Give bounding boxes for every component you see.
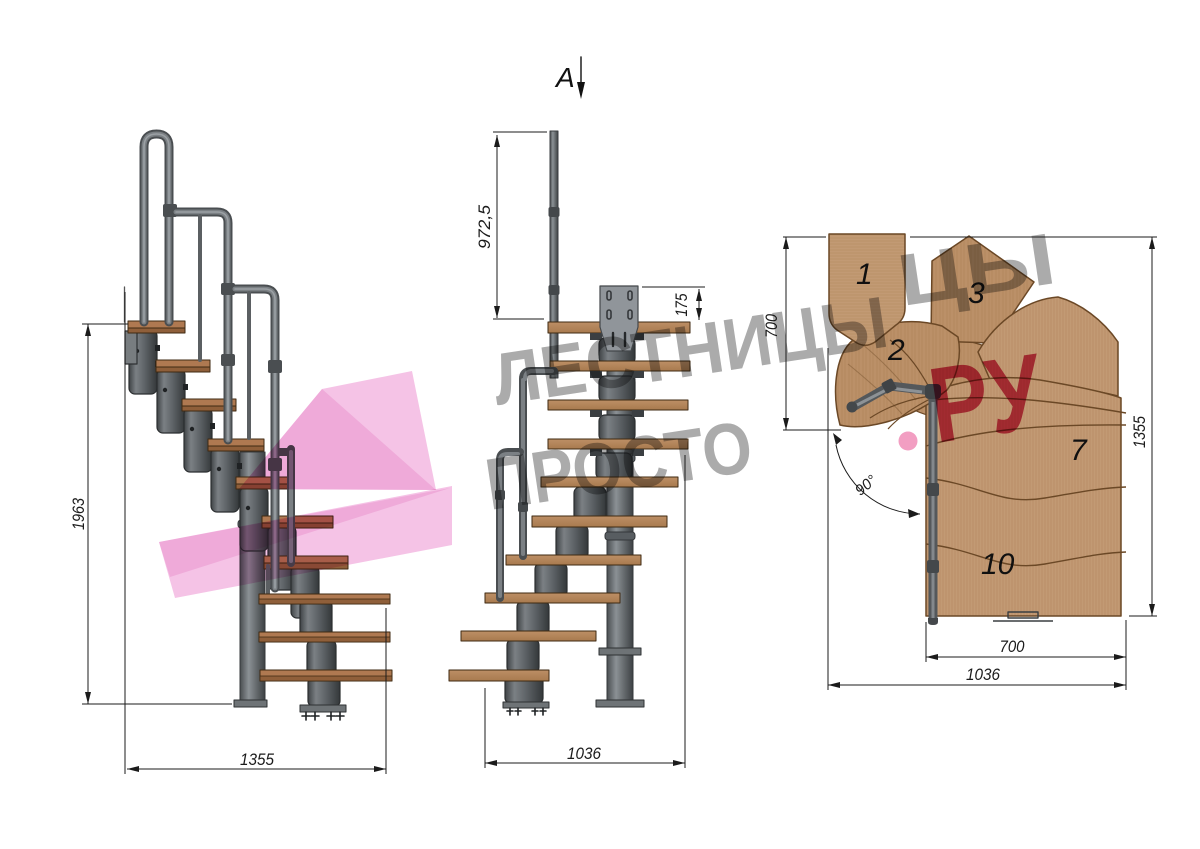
svg-text:1036: 1036: [567, 744, 601, 763]
svg-text:10: 10: [981, 548, 1015, 581]
svg-text:700: 700: [762, 314, 781, 338]
svg-text:7: 7: [1070, 434, 1088, 467]
svg-text:1036: 1036: [966, 665, 1000, 684]
svg-text:1963: 1963: [69, 498, 88, 530]
svg-text:700: 700: [1000, 637, 1025, 656]
svg-text:РУ: РУ: [922, 330, 1052, 465]
svg-text:175: 175: [672, 293, 691, 316]
svg-text:A: A: [554, 62, 575, 93]
svg-text:1355: 1355: [240, 750, 274, 769]
svg-text:972,5: 972,5: [475, 204, 494, 249]
svg-text:1355: 1355: [1130, 416, 1149, 448]
